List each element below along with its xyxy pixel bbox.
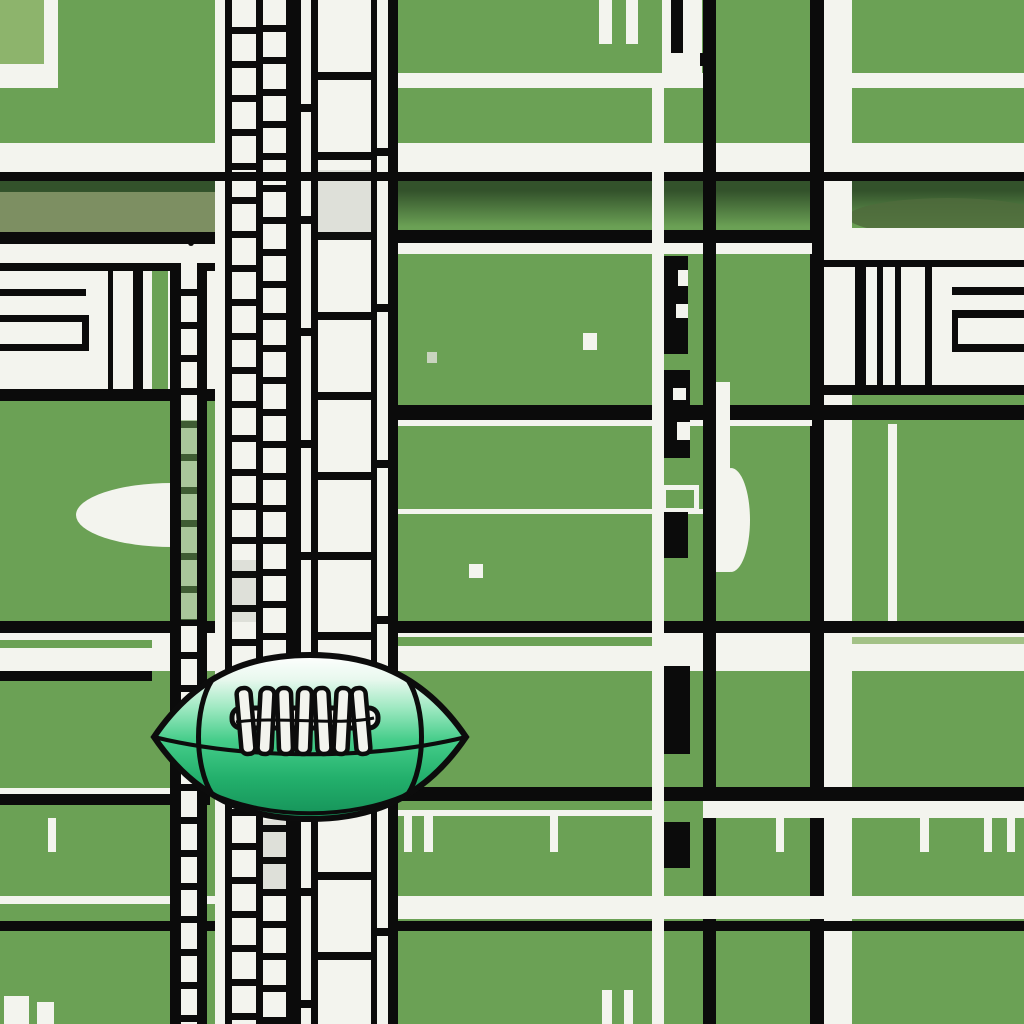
dash-marker <box>662 256 688 354</box>
ladder-bar <box>388 0 398 1024</box>
green-stripe-left <box>0 640 152 648</box>
top-white-band-right <box>852 73 1024 88</box>
ladder-bar-thick <box>286 0 301 1024</box>
yard-tick <box>48 818 56 852</box>
white-frame-square <box>661 485 699 513</box>
small-tint-square <box>427 352 437 363</box>
ladder-bar <box>225 0 232 1024</box>
ladder-cell-column <box>232 0 256 1024</box>
dash-notch <box>676 304 688 318</box>
dash-notch <box>673 388 686 400</box>
dash-notch <box>678 270 688 286</box>
panel-right-bar <box>877 267 883 385</box>
panel-right-stripe <box>952 287 1024 295</box>
ladder-smudge <box>263 820 286 890</box>
corner-square <box>0 0 44 64</box>
white-restamp-805 <box>703 801 763 818</box>
panel-right <box>824 267 1024 385</box>
thin-white-row-420 <box>397 420 812 426</box>
panel-right-bottom-line <box>824 385 1024 395</box>
ladder-cell-column <box>377 0 388 1024</box>
panel-right-stripe <box>952 310 1024 318</box>
black-vertical-mid <box>703 0 716 1024</box>
panel-left-stripe <box>0 344 83 351</box>
white-street-right <box>824 0 852 1024</box>
illustration-canvas <box>0 0 1024 1024</box>
small-white-square <box>583 333 597 350</box>
ladder-bar <box>311 0 318 1024</box>
bottom-tick <box>602 990 612 1024</box>
bottom-tick <box>4 996 29 1024</box>
yard-tick <box>1007 818 1015 852</box>
black-row-671 <box>0 671 152 681</box>
ladder-bar <box>371 0 377 1024</box>
white-row-right <box>824 228 1024 260</box>
white-leaf-shape <box>76 483 172 547</box>
panel-left-stripe <box>0 315 89 322</box>
black-vertical-right <box>810 0 824 1024</box>
olive-block <box>0 192 215 233</box>
ladder-bar <box>256 0 263 1024</box>
black-row-left <box>0 232 215 244</box>
dash-marker <box>663 666 690 754</box>
corner-frame-horizontal <box>0 64 58 88</box>
white-restamp-896 <box>660 896 760 919</box>
dash-marker <box>663 370 690 458</box>
bottom-tick <box>37 1002 54 1024</box>
white-bump-column <box>716 382 730 572</box>
football-svg <box>148 646 472 828</box>
panel-left-green-strip <box>152 271 168 389</box>
yard-tick <box>550 816 558 852</box>
white-row-mid <box>397 243 812 254</box>
black-dot <box>188 240 194 246</box>
black-row-mid <box>397 230 812 243</box>
panel-right-stripe <box>952 344 1024 352</box>
mini-ladder-right-bar <box>197 263 207 1024</box>
yard-tick <box>920 818 929 852</box>
football-illustration <box>148 646 472 828</box>
panel-right-bar <box>855 267 866 385</box>
green-stripe-right <box>852 637 1024 644</box>
white-street-mid <box>652 73 664 1024</box>
panel-right-bar <box>895 267 901 385</box>
black-row-621 <box>0 621 1024 633</box>
dash-notch <box>677 422 690 440</box>
dash-marker <box>664 512 688 558</box>
white-band-upper <box>0 143 1024 172</box>
top-tick <box>626 0 638 44</box>
white-row-left <box>0 244 215 263</box>
black-row-787 <box>380 787 1024 801</box>
top-black-bar <box>671 0 683 53</box>
panel-right-bar <box>925 267 932 385</box>
panel-left-bar <box>108 271 113 389</box>
ladder-smudge <box>232 560 256 622</box>
panel-right-top-line <box>824 260 1024 267</box>
top-tick <box>599 0 612 44</box>
yard-tick <box>776 818 784 852</box>
panel-left-stripe <box>0 289 86 296</box>
yard-tick <box>984 818 992 852</box>
green-stripe-mid <box>397 637 655 646</box>
mini-ladder-green-tint <box>181 420 197 620</box>
small-white-square <box>469 564 483 578</box>
bottom-tick <box>624 990 633 1024</box>
ladder-cell-column <box>301 0 311 1024</box>
thin-white-vertical <box>888 424 897 621</box>
mini-ladder-cells <box>181 263 197 1024</box>
panel-left-bar <box>133 271 143 389</box>
black-row-921 <box>0 921 1024 931</box>
ladder-cell-column-wide <box>318 0 371 1024</box>
mini-ladder-left-bar <box>170 263 181 1024</box>
black-row-172 <box>0 172 1024 181</box>
panel-right-bracket <box>952 310 958 352</box>
panel-left-bracket <box>82 315 89 351</box>
